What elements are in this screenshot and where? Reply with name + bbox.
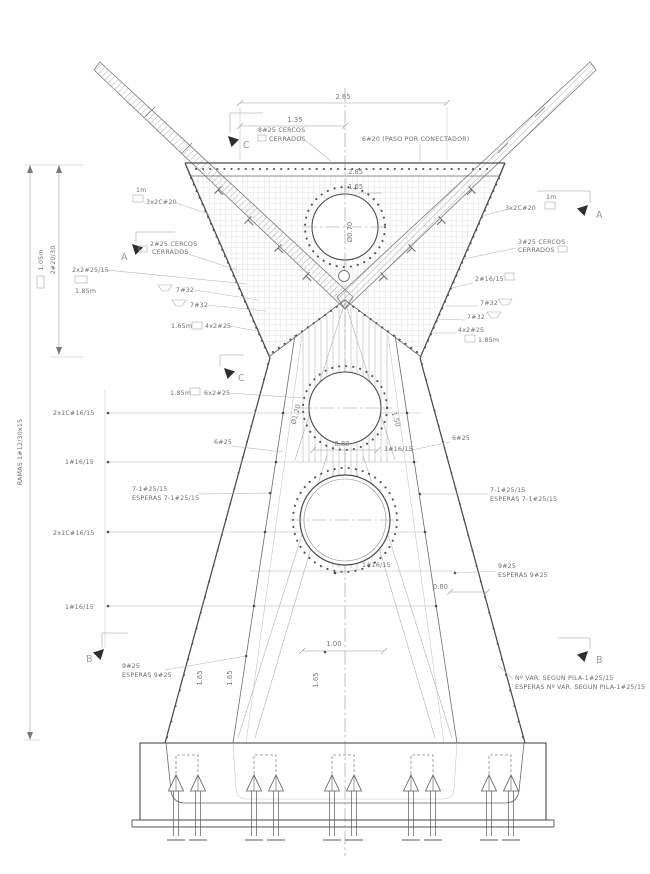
top-stirrups-line1: 8#25 CERCOS [258,127,305,134]
left-1-16-b-label: 1#16/15 [65,604,94,611]
dim-100-label: 1.00 [326,640,341,648]
right-esperas-line1: 7-1#25/15 [490,487,526,494]
left-185m-label: 1.85m [75,288,96,295]
mid-1-16-label: 1#16/15 [384,446,413,453]
left-6-25-label: 6#25 [214,439,232,446]
right-185m-label: 1.85m [478,337,499,344]
left-2x1c-b-label: 2x1C#16/15 [53,530,95,537]
left-2x2-label: 2x2#25/15 [72,267,109,274]
left-9-25-line1: 9#25 [122,663,140,670]
top-stirrups-line2: CERRADOS [269,136,306,143]
left-3x2c20-label: 3x2C#20 [146,199,177,206]
section-b-left-letter: B [86,654,93,665]
duct-lower [290,468,400,572]
right-4x2-label: 4x2#25 [458,327,484,334]
rot-165-b: 1.65 [226,670,234,685]
right-2-16-label: 2#16/15 [475,276,504,283]
left-165m-label: 1.65m [171,323,192,330]
dim-080-label: 0.80 [334,440,349,448]
left-dim-rails: RAMAS 1#12/30x15 2#20/30 1.05m [17,165,84,740]
section-b-left-marker: B [86,633,128,665]
left-185m-b-label: 1.85m [170,390,191,397]
rot-165-c: 1.65 [312,672,320,687]
section-c-mid-marker: C [220,355,245,384]
rot-150-label: 1.50 [390,411,402,428]
dim-080-right-label: 0.80 [433,583,448,591]
right-7-32-b: 7#32 [467,314,485,321]
right-9-25-line2: ESPERAS 9#25 [498,572,548,579]
right-9-25-line1: 9#25 [498,563,516,570]
right-var-line1: Nº VAR. SEGUN PILA-1#25/15 [515,675,614,682]
rot-165-a: 1.65 [196,670,204,685]
right-7-32-a: 7#32 [480,300,498,307]
dia-120-label: Ø1.20 [290,404,303,426]
left-esperas-line1: 7-1#25/15 [132,486,168,493]
left-7-32-b: 7#32 [190,302,208,309]
duct-top-diameter-label: Ø0.70 [346,222,354,242]
left-cercos-line1: 2#25 CERCOS [150,241,197,248]
section-b-right-marker: B [558,638,603,666]
drawing-canvas: 2.65 1.35 2.85 1.65 Ø0.70 RAMAS 1#12/30x… [0,0,650,874]
top-labels: 8#25 CERCOS CERRADOS 6#20 (PASO POR CONE… [258,127,469,161]
dim-135-label: 1.35 [287,116,302,124]
ramas-label: RAMAS 1#12/30x15 [17,419,24,486]
left-esperas-line2: ESPERAS 7-1#25/15 [132,495,199,502]
section-c-top-letter: C [243,140,250,151]
dim-165-label: 1.65 [348,183,363,191]
right-6-25-label: 6#25 [452,435,470,442]
left-9-25-line2: ESPERAS 9#25 [122,672,172,679]
dim-100: 1.00 [299,640,387,654]
left-2-20-30-label: 2#20/30 [50,246,57,275]
left-105m-label: 1.05m [38,249,45,270]
left-2x1c-a-label: 2x1C#16/15 [53,410,95,417]
right-cercos-line2: CERRADOS [518,247,555,254]
dim-265-label: 2.65 [335,93,350,101]
foundation-block [132,743,554,840]
connector-label: 6#20 (PASO POR CONECTADOR) [362,136,469,143]
left-7-32-a: 7#32 [176,287,194,294]
pylon-elevation-drawing: 2.65 1.35 2.85 1.65 Ø0.70 RAMAS 1#12/30x… [0,0,650,874]
right-1m-label: 1m [546,194,557,201]
duct-middle [298,366,392,450]
right-cercos-line1: 3#25 CERCOS [518,239,565,246]
section-b-right-letter: B [596,655,603,666]
right-var-line2: ESPERAS Nº VAR. SEGUN PILA-1#25/15 [515,684,645,691]
left-1-16-a-label: 1#16/15 [65,459,94,466]
right-esperas-line2: ESPERAS 7-1#25/15 [490,496,557,503]
section-a-left-letter: A [121,252,128,263]
section-a-right-letter: A [596,210,603,221]
left-1m-label: 1m [136,187,147,194]
section-c-mid-letter: C [238,373,245,384]
dim-285-label: 2.85 [348,168,363,176]
left-4x2-label: 4x2#25 [205,323,231,330]
left-6x2-label: 6x2#25 [204,390,230,397]
low-1-16-label: 1#16/15 [362,562,391,569]
tie-lines [105,390,455,648]
